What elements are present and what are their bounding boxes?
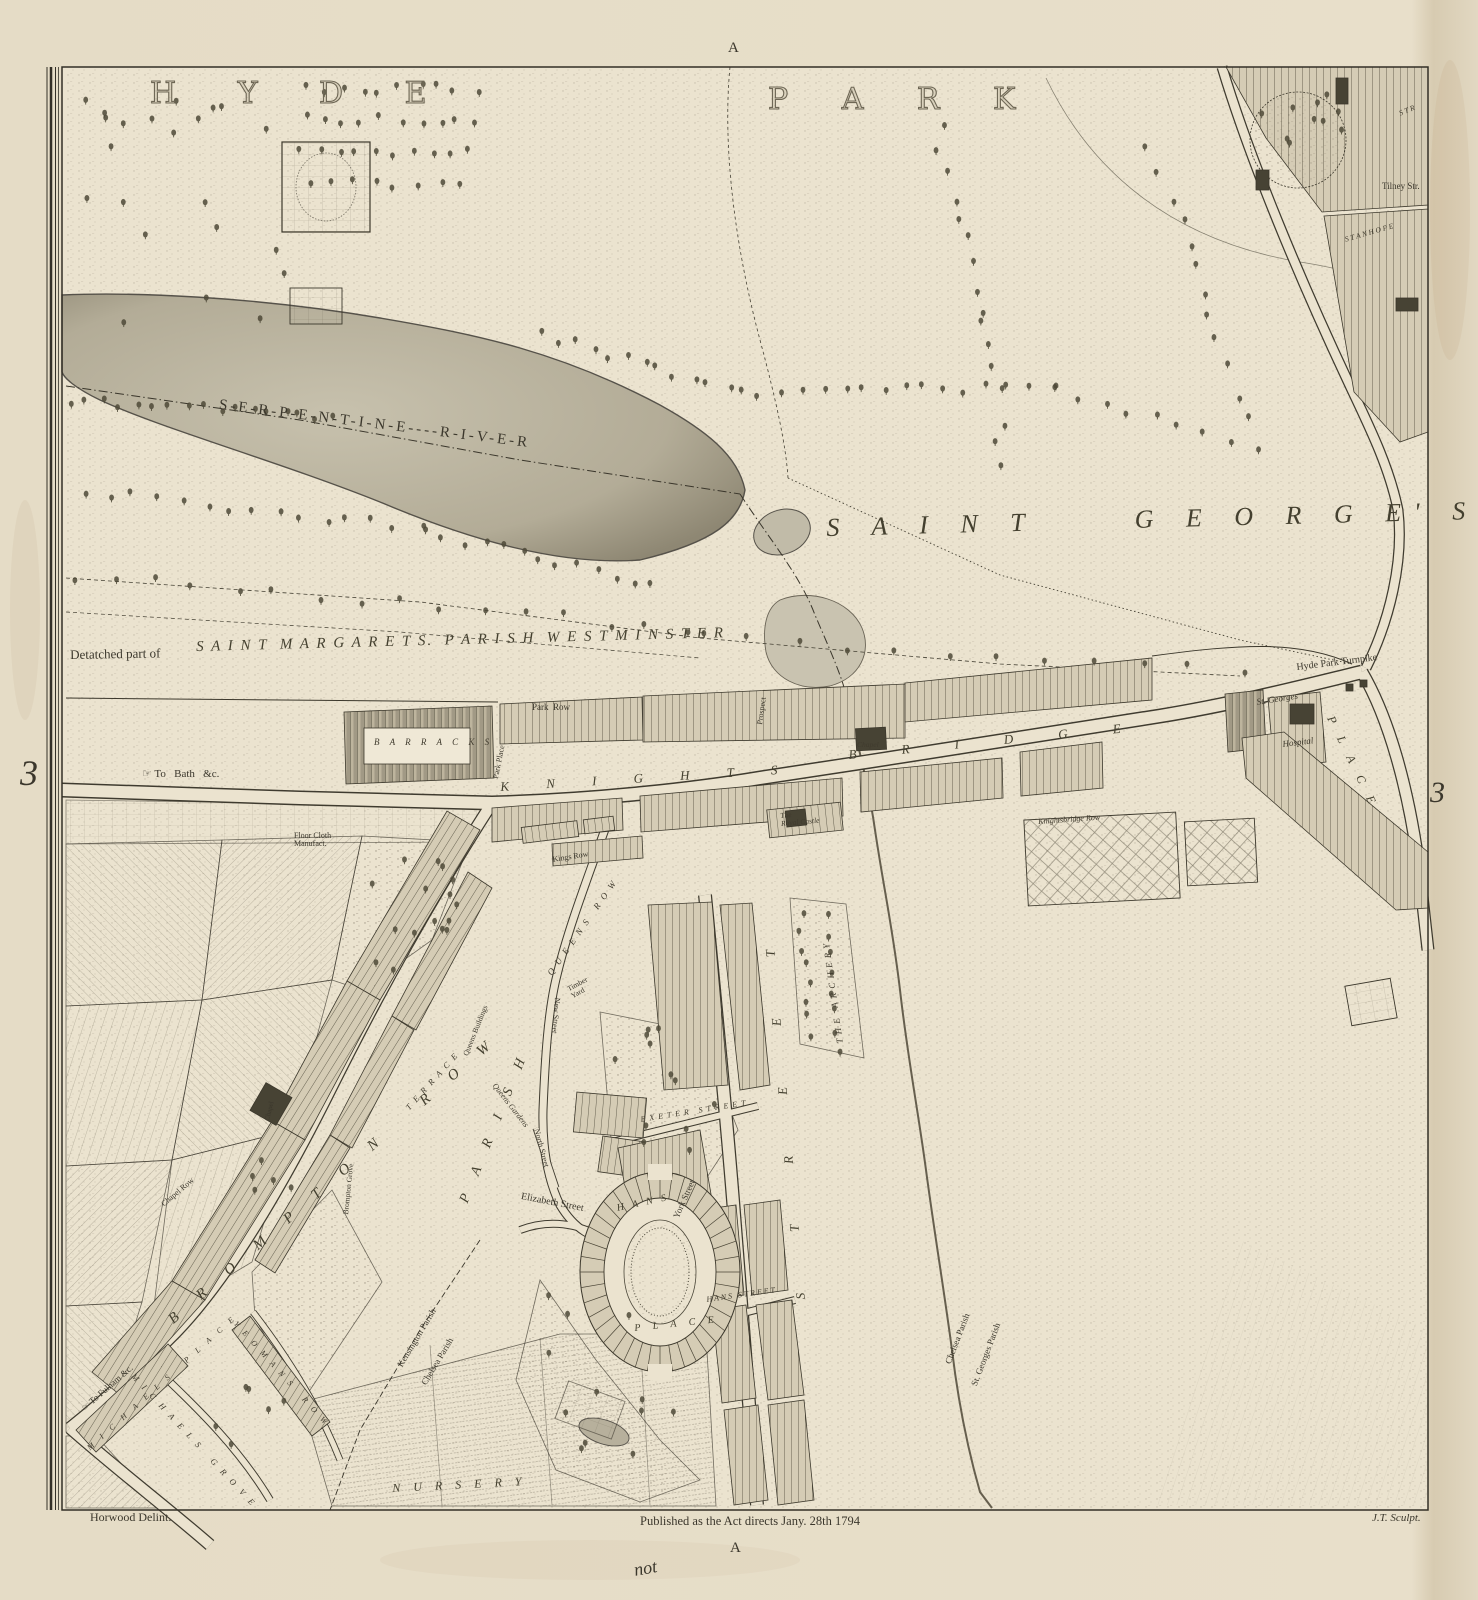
surveyor-credit: Horwood Delint. [90,1510,171,1525]
manuscript-annotation: not [632,1556,658,1581]
map-engraving [0,0,1478,1600]
grid-number-left: 3 [20,752,38,794]
publication-imprint: Published as the Act directs Jany. 28th … [640,1514,860,1529]
horwood-map-sheet: H Y D EP A R KS-E-R-P-E-N-T-I-N-E----R-I… [0,0,1478,1600]
grid-letter-top: A [728,40,739,57]
engraver-credit: J.T. Sculpt. [1372,1512,1421,1524]
grid-letter-bottom: A [730,1540,741,1557]
grid-number-right: 3 [1430,776,1445,810]
